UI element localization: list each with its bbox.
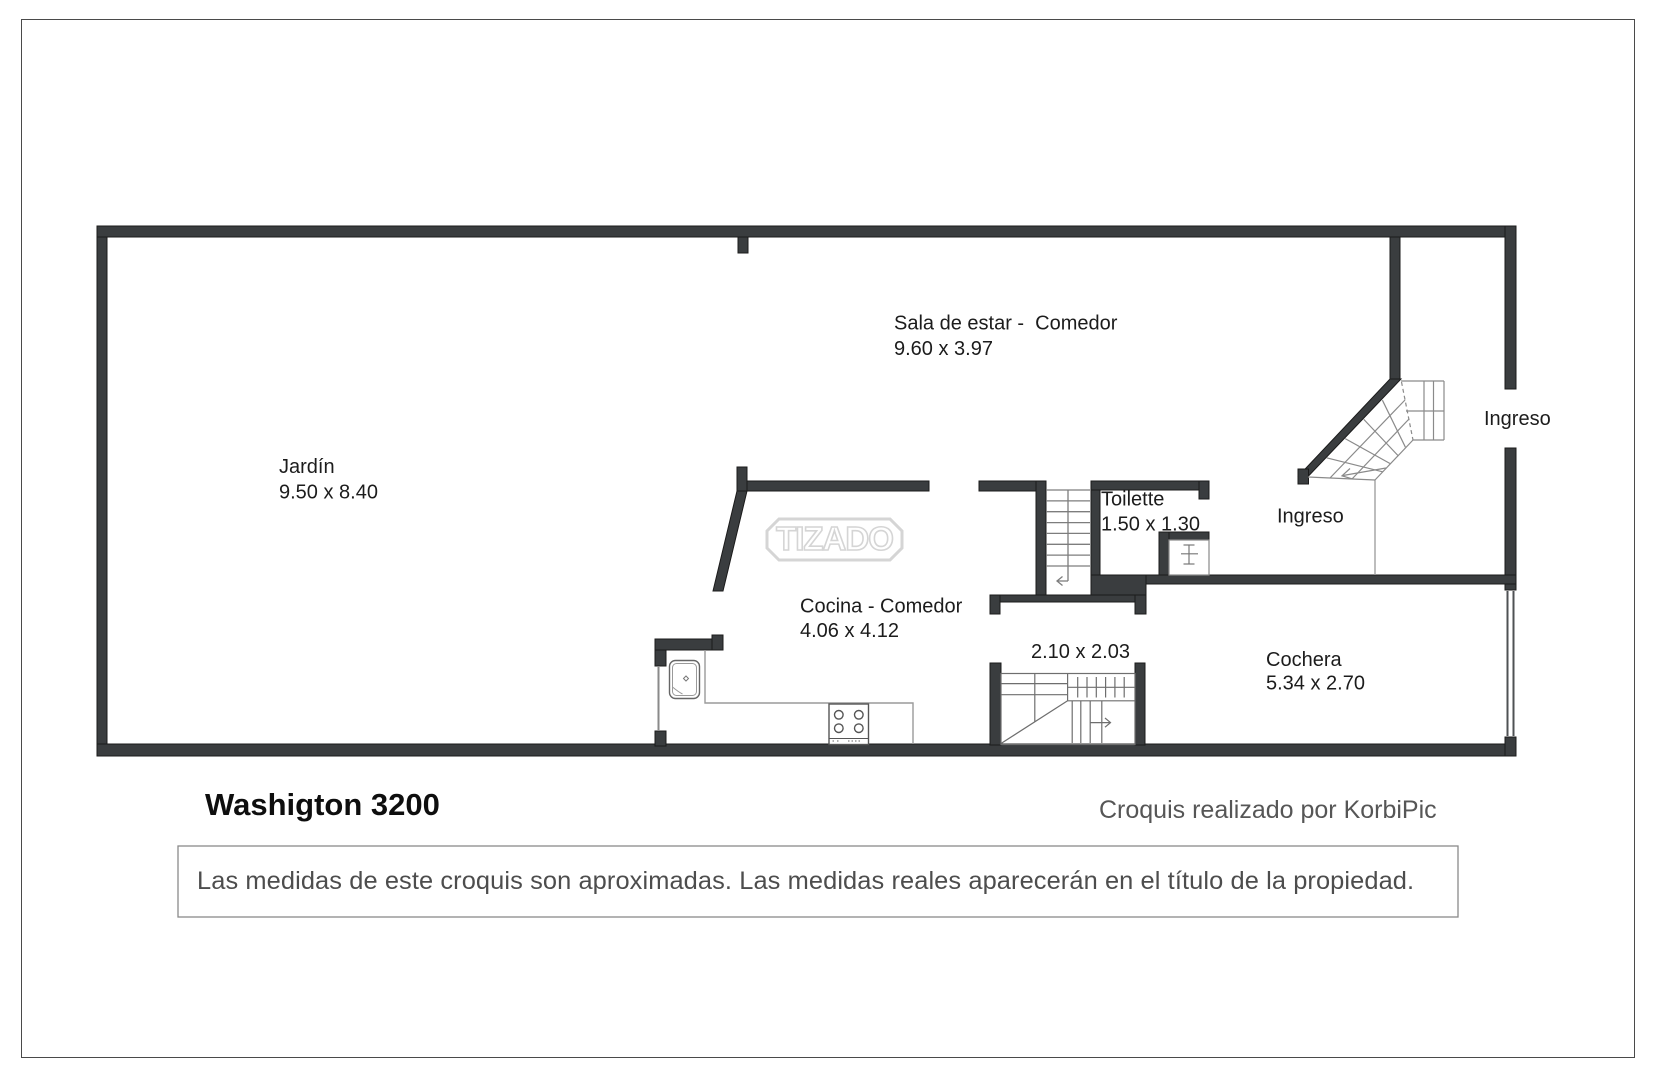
svg-text:Cochera: Cochera [1266,649,1342,671]
svg-text:1.50 x 1.30: 1.50 x 1.30 [1101,514,1200,536]
svg-text:Ingreso: Ingreso [1277,505,1344,527]
svg-text:9.60 x 3.97: 9.60 x 3.97 [894,338,993,360]
svg-text:Sala de estar - Comedor: Sala de estar - Comedor [894,313,1118,335]
svg-text:Washigton 3200: Washigton 3200 [205,787,440,822]
svg-text:9.50 x 8.40: 9.50 x 8.40 [279,481,378,503]
svg-text:TIZADO: TIZADO [776,520,893,557]
svg-text:Croquis realizado por KorbiPic: Croquis realizado por KorbiPic [1099,796,1437,824]
svg-text:4.06 x 4.12: 4.06 x 4.12 [800,620,899,642]
svg-text:Cocina - Comedor: Cocina - Comedor [800,596,963,618]
svg-text:Jardín: Jardín [279,456,335,478]
svg-text:Ingreso: Ingreso [1484,408,1551,430]
svg-text:Toilette: Toilette [1101,489,1164,511]
svg-text:Las medidas de este croquis so: Las medidas de este croquis son aproxima… [197,867,1414,895]
svg-text:5.34 x 2.70: 5.34 x 2.70 [1266,673,1365,695]
svg-text:2.10 x 2.03: 2.10 x 2.03 [1031,641,1130,663]
